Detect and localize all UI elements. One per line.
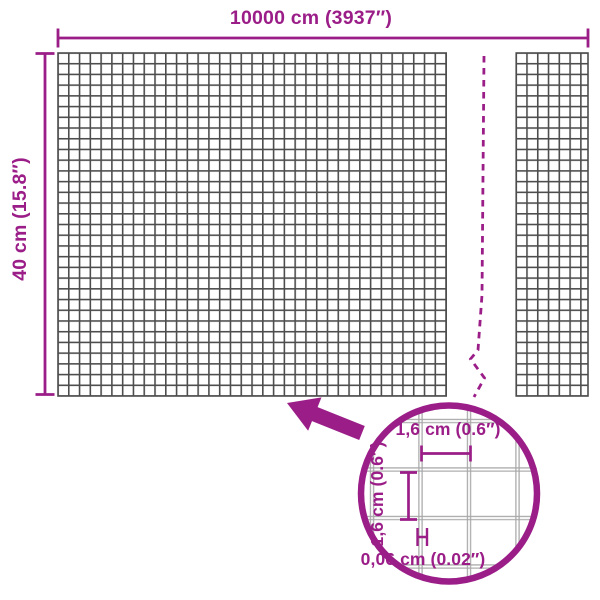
width-dimension-label: 10000 cm (3937″) bbox=[230, 7, 392, 29]
break-line bbox=[471, 56, 485, 397]
detail-wire-thickness-label: 0,06 cm (0.02″) bbox=[361, 549, 486, 569]
detail-width-label: 1,6 cm (0.6″) bbox=[395, 419, 500, 439]
zoom-arrow-icon bbox=[287, 397, 365, 440]
height-dimension: 40 cm (15.8″) bbox=[9, 54, 55, 395]
height-dimension-label: 40 cm (15.8″) bbox=[9, 157, 31, 281]
width-dimension: 10000 cm (3937″) bbox=[58, 7, 588, 48]
magnifier-detail: 1,6 cm (0.6″) 1,6 cm (0.6″) 0,06 cm (0.0… bbox=[357, 401, 541, 586]
product-dimension-diagram: 10000 cm (3937″) 40 cm (15.8″) 1,6 cm (0… bbox=[0, 0, 600, 600]
detail-height-label: 1,6 cm (0.6″) bbox=[367, 441, 387, 546]
mesh-panel bbox=[58, 53, 446, 396]
mesh-panel-torn-piece bbox=[516, 53, 588, 396]
diagram-svg: 10000 cm (3937″) 40 cm (15.8″) 1,6 cm (0… bbox=[0, 0, 600, 600]
